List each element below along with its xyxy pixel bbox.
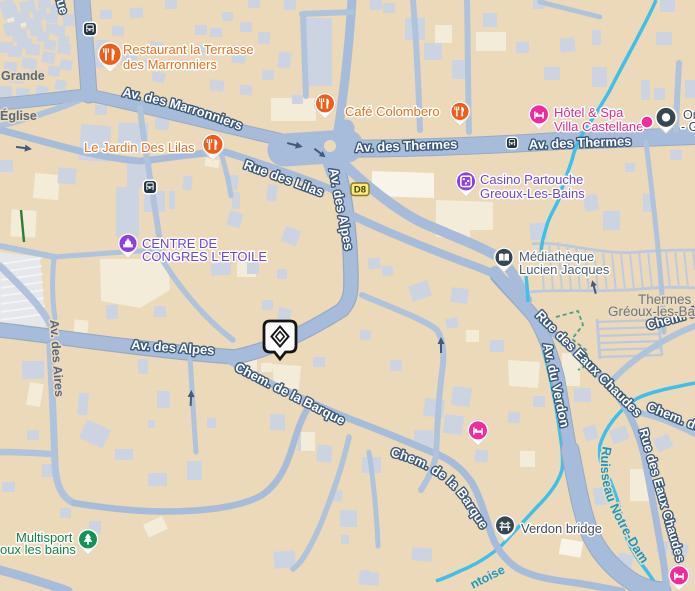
svg-text:Grande: Grande	[1, 69, 45, 83]
svg-text:Hôtel & Spa: Hôtel & Spa	[554, 105, 624, 120]
svg-text:CONGRES L'ETOILE: CONGRES L'ETOILE	[142, 249, 267, 264]
svg-text:des Marronniers: des Marronniers	[123, 57, 217, 72]
svg-text:Greoux-Les-Bains: Greoux-Les-Bains	[480, 186, 585, 201]
svg-text:Villa Castellane: Villa Castellane	[554, 119, 643, 134]
svg-text:Lucien Jacques: Lucien Jacques	[519, 262, 610, 277]
svg-text:oux les bains: oux les bains	[0, 542, 76, 557]
svg-text:D8: D8	[354, 185, 366, 196]
svg-text:Verdon bridge: Verdon bridge	[521, 521, 602, 536]
svg-text:- G: - G	[681, 120, 695, 134]
svg-text:Casino Partouche: Casino Partouche	[480, 172, 583, 187]
svg-text:Église: Église	[0, 108, 37, 123]
svg-text:Le Jardin Des Lilas: Le Jardin Des Lilas	[84, 140, 195, 155]
svg-text:Café Colombero: Café Colombero	[345, 104, 440, 119]
svg-text:Restaurant la Terrasse: Restaurant la Terrasse	[123, 42, 254, 57]
svg-text:Gréoux-les-Bain: Gréoux-les-Bain	[608, 304, 695, 319]
